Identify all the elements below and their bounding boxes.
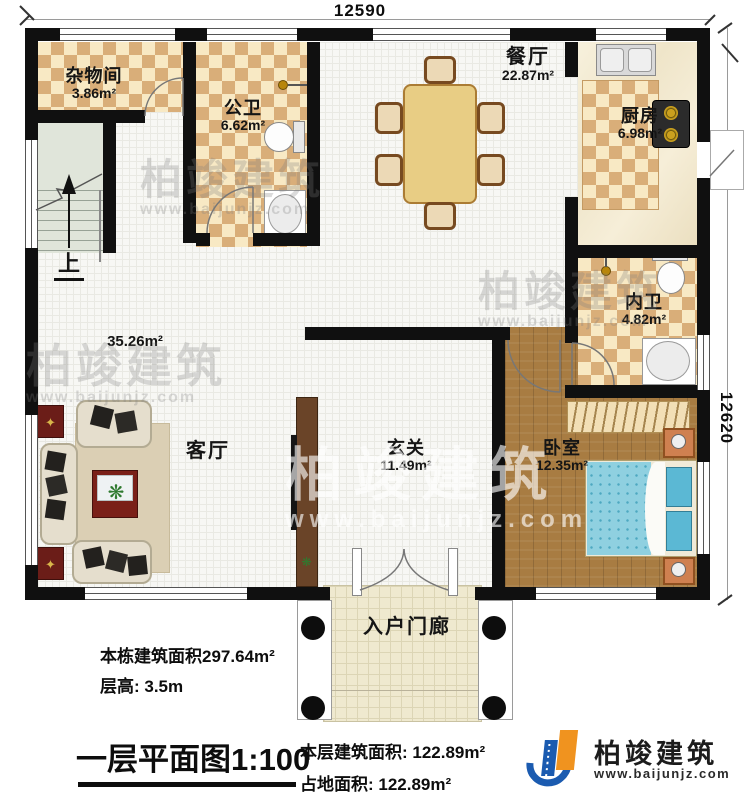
- faucet: [278, 80, 288, 90]
- room-label-storage: 杂物间 3.86m²: [46, 66, 142, 102]
- toilet-tank: [293, 121, 305, 153]
- stairs-up-label: 上: [54, 252, 84, 281]
- logo-tower-orange: [556, 730, 578, 770]
- right-dimension-line: [727, 28, 728, 600]
- toilet-bowl: [657, 262, 685, 294]
- window-living-left: [25, 415, 38, 565]
- sofa-top: [76, 400, 152, 448]
- side-table: ✦: [37, 547, 64, 580]
- floor-entry-porch: [323, 585, 482, 722]
- dining-table: [403, 84, 477, 204]
- floor-height-note: 层高: 3.5m: [100, 672, 183, 697]
- plant: ❋: [105, 482, 127, 504]
- wall-kitchen-bottom: [565, 245, 710, 258]
- room-label-dining: 餐厅 22.87m²: [478, 46, 578, 84]
- sink-basin: [600, 48, 624, 72]
- tv-screen: [291, 435, 297, 530]
- window-stairs: [25, 140, 38, 248]
- room-label-porch: 入户门廊: [352, 616, 462, 638]
- room-label-bedroom: 卧室 12.35m²: [514, 438, 610, 474]
- sofa-cushion: [45, 474, 68, 497]
- dimension-tick: [20, 15, 30, 25]
- bed-pillow: [666, 511, 692, 551]
- room-label-kitchen: 厨房 6.98m²: [594, 106, 686, 142]
- porch-column: [482, 616, 506, 640]
- room-label-foyer: 玄关 11.49m²: [358, 438, 454, 474]
- wall-foyer-top: [305, 327, 510, 340]
- wall-publicbath-bottom: [196, 233, 210, 246]
- wall-storage-bath: [183, 42, 196, 243]
- wall-storage-bottom: [38, 110, 145, 123]
- window-storage: [60, 28, 175, 41]
- sink-basin: [628, 48, 652, 72]
- bed-mattress: [587, 462, 651, 555]
- dining-chair: [375, 154, 403, 186]
- sofa-cushion: [127, 555, 148, 576]
- bath-sink-basin: [646, 341, 690, 381]
- right-dimension-label: 12620: [716, 386, 736, 450]
- kitchen-side-door-opening: [697, 142, 710, 178]
- wall-stairs-right: [103, 123, 116, 253]
- nightstand-lamp: [671, 562, 686, 577]
- plant: ❋: [300, 555, 313, 569]
- break-mark: [722, 44, 738, 62]
- stair-rail: [99, 190, 101, 262]
- plan-title-underline: [78, 782, 296, 787]
- room-label-ensuite: 内卫 4.82m²: [602, 292, 686, 328]
- window-kitchen: [596, 28, 666, 41]
- plan-title: 一层平面图1:100: [76, 734, 310, 779]
- nightstand-lamp: [671, 434, 686, 449]
- sofa-cushion: [44, 450, 66, 472]
- window-ensuite: [697, 335, 710, 390]
- floor-area-note: 本层建筑面积: 122.89m²: [300, 738, 485, 763]
- dimension-tick: [718, 23, 732, 33]
- entrance-door-leaf: [448, 548, 458, 596]
- dining-chair: [477, 154, 505, 186]
- kitchen-rug: [582, 80, 659, 210]
- kitchen-side-door-landing: [710, 130, 744, 190]
- break-mark: [20, 6, 34, 20]
- dining-chair: [477, 102, 505, 134]
- window-living-bottom: [85, 587, 247, 600]
- wall-ensuite-left: [565, 258, 578, 343]
- room-label-living: 客厅: [170, 440, 246, 462]
- window-bedroom-right: [697, 462, 710, 554]
- wall-publicbath-right: [307, 42, 320, 235]
- room-label-public-bath: 公卫 6.62m²: [203, 98, 283, 134]
- side-table: ✦: [37, 405, 64, 438]
- dimension-tick: [705, 15, 715, 25]
- footprint-area-note: 占地面积: 122.89m²: [300, 770, 451, 795]
- porch-column: [482, 696, 506, 720]
- top-dimension-label: 12590: [320, 1, 400, 21]
- stair-treads: [38, 190, 103, 253]
- porch-step-line: [323, 690, 480, 691]
- entrance-door-leaf: [352, 548, 362, 596]
- sofa-cushion: [45, 499, 66, 520]
- brand-website: www.baijunjz.com: [594, 766, 730, 781]
- bath-sink-basin: [268, 194, 302, 234]
- wall-foyer-right: [492, 340, 505, 600]
- building-total-area-note: 本栋建筑面积297.64m²: [100, 642, 275, 667]
- brand-logo-icon: [526, 728, 588, 790]
- dining-chair: [424, 202, 456, 230]
- sofa-cushion: [114, 410, 137, 433]
- window-bedroom-bottom: [536, 587, 656, 600]
- dimension-tick: [718, 595, 732, 605]
- faucet: [601, 266, 611, 276]
- faucet-pipe: [288, 84, 307, 86]
- dining-chair: [424, 56, 456, 84]
- bed-sheet-fold: [645, 462, 665, 555]
- porch-column: [301, 616, 325, 640]
- window-dining: [373, 28, 510, 41]
- room-area-living: 35.26m²: [90, 334, 180, 351]
- bed-pillow: [666, 467, 692, 507]
- window-public-bath: [207, 28, 297, 41]
- dining-chair: [375, 102, 403, 134]
- floor-plan-sheet: 12590 12620 ✦ ✦ ❋ ❋: [0, 0, 750, 803]
- sofa-cushion: [82, 546, 105, 569]
- porch-column: [301, 696, 325, 720]
- wall-publicbath-bottom: [253, 233, 320, 246]
- wall-ensuite-bottom: [565, 385, 710, 398]
